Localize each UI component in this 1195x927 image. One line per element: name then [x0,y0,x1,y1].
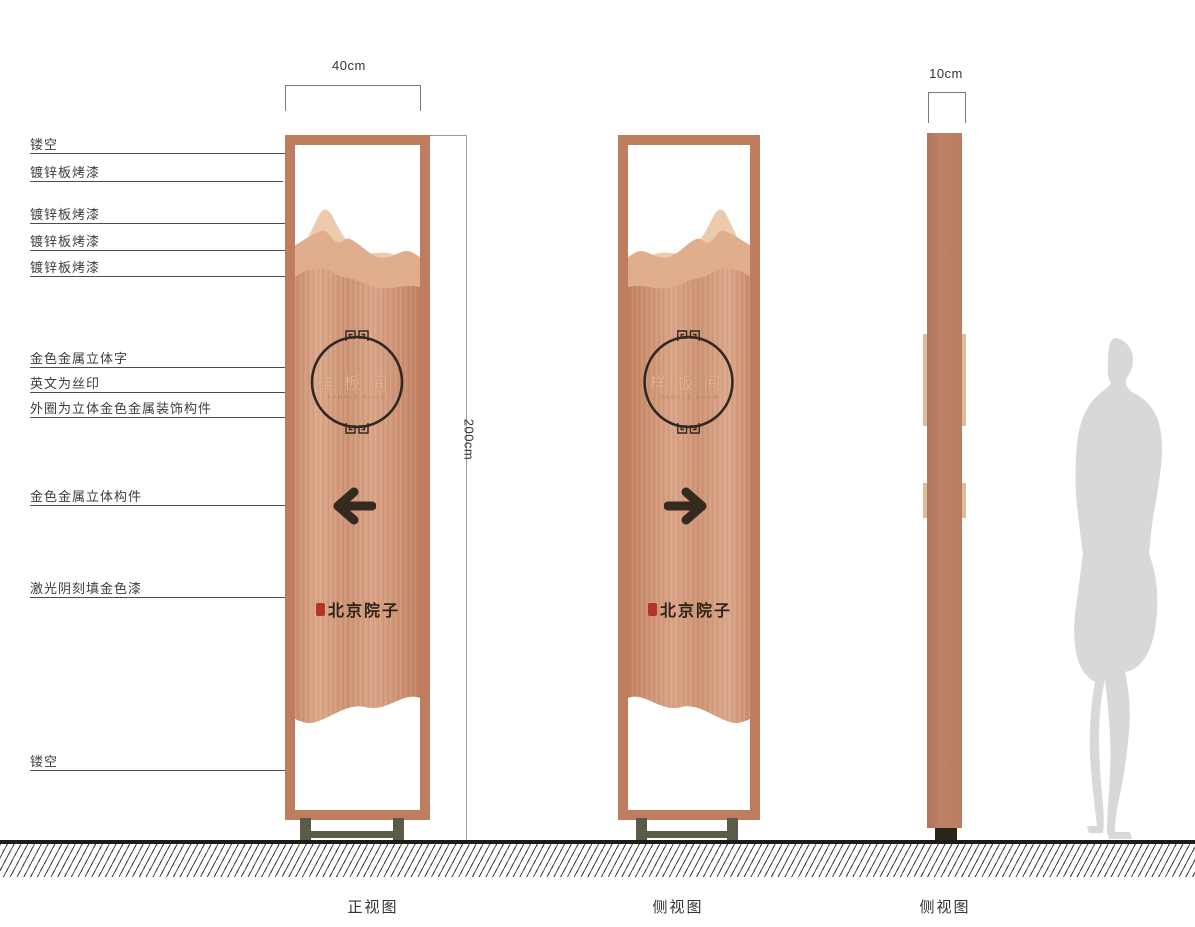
callout-hollow-bottom: 镂空 [30,751,298,771]
mountain-layers [295,209,420,723]
dim-height-tick [430,135,466,136]
side-english-subtext: SAMPLE ROOM [649,395,731,401]
callout-galvanized-3: 镀锌板烤漆 [30,231,310,251]
dim-height-line [466,135,467,840]
red-seal-icon [316,603,325,616]
ground-hatch [0,844,1195,877]
front-base-bar [300,831,404,838]
profile-column [927,133,962,828]
side-brand-logo: 北京院子 [640,597,740,621]
dim-front-width-label: 40cm [332,58,366,73]
mountain-layers-mirrored [628,209,750,723]
front-circle-text: 样板间 [314,369,400,394]
side-sign-frame [618,135,760,820]
front-sign-frame [285,135,430,820]
callout-galvanized-4: 镀锌板烤漆 [30,257,288,277]
drawing-canvas: 镂空 镀锌板烤漆 镀锌板烤漆 镀锌板烤漆 镀锌板烤漆 金色金属立体字 英文为丝印… [0,0,1195,927]
view-label-front: 正视图 [338,896,408,917]
right-arrow-icon [664,486,712,526]
front-brand-text: 北京院子 [328,597,400,621]
front-brand-logo: 北京院子 [308,597,408,621]
dim-side-width-label: 10cm [924,66,968,81]
callout-galvanized-2: 镀锌板烤漆 [30,204,322,224]
side-brand-text: 北京院子 [660,597,732,621]
front-english-subtext: SAMPLE ROOM [316,395,398,401]
callout-hollow-top: 镂空 [30,134,305,154]
side-base-bar [636,831,738,838]
side-sign-panel [628,145,750,810]
human-silhouette [1033,336,1178,845]
red-seal-icon [648,603,657,616]
side-circle-text: 样板间 [647,369,733,394]
front-sign-panel [295,145,420,810]
callout-gold-ring: 外圈为立体金色金属装饰构件 [30,398,315,418]
left-arrow-icon [328,486,376,526]
callout-galvanized-1: 镀锌板烤漆 [30,162,283,182]
dim-front-width-bracket [285,85,421,111]
view-label-side: 侧视图 [643,896,713,917]
callout-laser-engrave: 激光阴刻填金色漆 [30,578,290,598]
dim-side-width-bracket [928,92,966,123]
view-label-profile: 侧视图 [910,896,980,917]
dim-height-label: 200cm [461,419,476,461]
